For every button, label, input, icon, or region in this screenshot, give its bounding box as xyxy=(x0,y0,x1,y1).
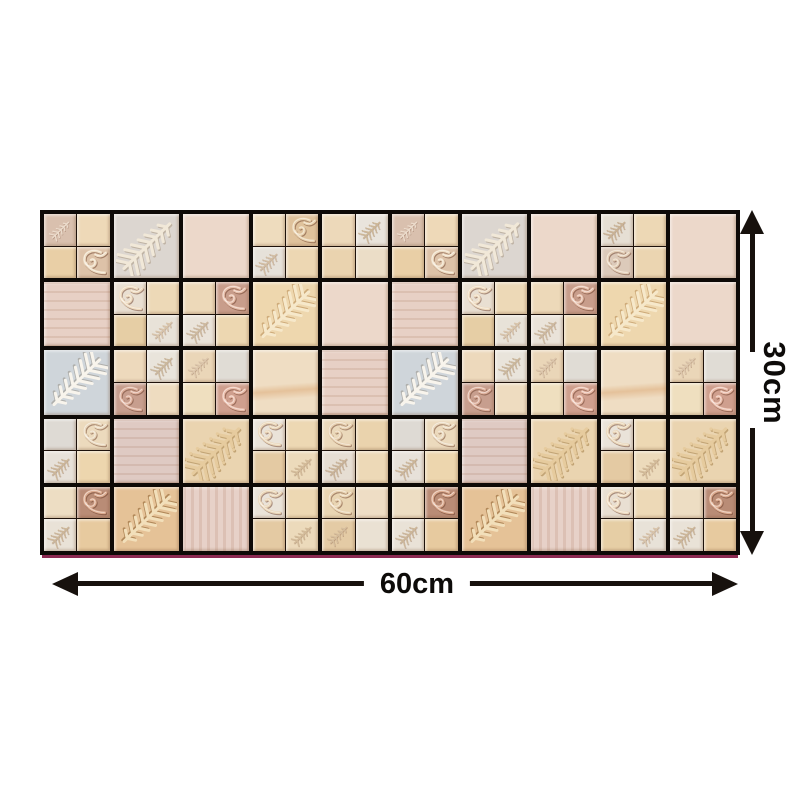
subtile xyxy=(253,451,285,483)
subtile xyxy=(564,315,596,347)
subtile xyxy=(253,419,285,451)
subtile xyxy=(356,487,388,519)
subtile xyxy=(77,214,109,246)
tile-Pp2 xyxy=(392,282,458,346)
curl-scroll-icon xyxy=(601,419,632,449)
height-dimension: 30cm xyxy=(746,210,798,555)
subtile xyxy=(425,451,457,483)
curl-scroll-icon xyxy=(601,487,632,517)
subtile xyxy=(392,419,424,451)
curl-scroll-icon xyxy=(704,384,735,414)
subtile xyxy=(77,247,109,279)
curl-scroll-icon xyxy=(426,419,457,449)
subtile xyxy=(634,487,666,519)
subtile xyxy=(356,419,388,451)
fern-dotted-icon xyxy=(356,215,387,245)
quad-subtiles xyxy=(601,419,667,483)
subtile xyxy=(495,315,527,347)
subtile xyxy=(495,282,527,314)
subtile xyxy=(670,350,702,382)
fern-icon xyxy=(148,315,179,345)
curl-scroll-icon xyxy=(462,283,493,313)
quad-subtiles xyxy=(44,214,110,278)
subtile xyxy=(531,350,563,382)
fern-icon xyxy=(116,489,178,549)
tile-qBL xyxy=(114,350,180,414)
subtile xyxy=(601,214,633,246)
subtile xyxy=(392,451,424,483)
subtile xyxy=(601,451,633,483)
tile-qTRp xyxy=(183,282,249,346)
tile-Pg xyxy=(462,419,528,483)
curl-scroll-icon xyxy=(601,247,632,277)
quad-subtiles xyxy=(322,487,388,551)
curl-scroll-icon xyxy=(114,283,145,313)
subtile xyxy=(462,350,494,382)
subtile xyxy=(77,519,109,551)
subtile xyxy=(564,350,596,382)
subtile xyxy=(495,350,527,382)
tile-qTRc xyxy=(44,419,110,483)
curl-scroll-icon xyxy=(78,247,109,277)
tile-Pp2 xyxy=(44,282,110,346)
arrow-shaft xyxy=(750,232,755,352)
fern-icon xyxy=(323,520,354,550)
subtile xyxy=(634,451,666,483)
subtile xyxy=(704,519,736,551)
subtile xyxy=(44,519,76,551)
quad-subtiles xyxy=(462,282,528,346)
fern-dotted-icon xyxy=(45,452,76,482)
fern-icon xyxy=(464,489,526,549)
curl-scroll-icon xyxy=(217,283,248,313)
subtile xyxy=(462,383,494,415)
subtile xyxy=(77,419,109,451)
fern-dotted-icon xyxy=(672,421,734,481)
tile-qTL xyxy=(601,487,667,551)
subtile xyxy=(564,282,596,314)
quad-subtiles xyxy=(531,282,597,346)
fern-icon xyxy=(255,284,317,344)
quad-subtiles xyxy=(253,419,319,483)
subtile xyxy=(44,487,76,519)
quad-subtiles xyxy=(322,214,388,278)
tile-BFwh xyxy=(44,350,110,414)
tile-Pp xyxy=(322,282,388,346)
curl-scroll-icon xyxy=(78,419,109,449)
tile-qBRp xyxy=(670,350,736,414)
subtile xyxy=(564,383,596,415)
subtile xyxy=(462,282,494,314)
subtile xyxy=(462,315,494,347)
fern-icon xyxy=(635,452,666,482)
subtile xyxy=(495,383,527,415)
subtile xyxy=(147,282,179,314)
subtile xyxy=(44,451,76,483)
fern-icon xyxy=(532,351,563,381)
quad-subtiles xyxy=(392,487,458,551)
arrow-right-icon xyxy=(712,572,738,596)
subtile xyxy=(601,247,633,279)
subtile xyxy=(286,519,318,551)
tile-qBL2 xyxy=(322,419,388,483)
subtile xyxy=(44,214,76,246)
curl-scroll-icon xyxy=(565,384,596,414)
fern-icon xyxy=(496,315,527,345)
tile-BFwh xyxy=(392,350,458,414)
quad-subtiles xyxy=(253,214,319,278)
subtile xyxy=(44,247,76,279)
subtile xyxy=(147,315,179,347)
subtile xyxy=(286,247,318,279)
subtile xyxy=(322,487,354,519)
quad-subtiles xyxy=(462,350,528,414)
quad-subtiles xyxy=(392,419,458,483)
curl-scroll-icon xyxy=(323,487,354,517)
subtile xyxy=(286,419,318,451)
subtile xyxy=(670,519,702,551)
subtile xyxy=(253,247,285,279)
subtile xyxy=(356,519,388,551)
quad-subtiles xyxy=(44,487,110,551)
width-dimension: 60cm xyxy=(52,571,738,597)
quad-subtiles xyxy=(44,419,110,483)
tile-qTL xyxy=(462,282,528,346)
subtile xyxy=(392,214,424,246)
subtile xyxy=(531,315,563,347)
subtile xyxy=(425,419,457,451)
subtile xyxy=(216,383,248,415)
fern-dotted-icon xyxy=(184,315,215,345)
subtile xyxy=(253,519,285,551)
fern-icon xyxy=(671,351,702,381)
subtile xyxy=(322,419,354,451)
tile-panel xyxy=(40,210,740,555)
subtile xyxy=(392,519,424,551)
fern-icon xyxy=(393,215,424,245)
subtile xyxy=(322,451,354,483)
curl-scroll-icon xyxy=(253,487,284,517)
subtile xyxy=(670,487,702,519)
subtile xyxy=(183,315,215,347)
subtile xyxy=(704,383,736,415)
tile-Pp xyxy=(670,282,736,346)
tile-qE xyxy=(322,214,388,278)
subtile xyxy=(634,419,666,451)
subtile xyxy=(634,519,666,551)
width-label: 60cm xyxy=(364,571,470,597)
height-label: 30cm xyxy=(756,341,792,424)
tile-BFw xyxy=(601,282,667,346)
tile-Pp xyxy=(670,214,736,278)
subtile xyxy=(425,247,457,279)
subtile xyxy=(704,487,736,519)
subtile xyxy=(44,419,76,451)
subtile xyxy=(216,350,248,382)
subtile xyxy=(356,247,388,279)
fern-icon xyxy=(464,216,526,276)
tile-Pp2 xyxy=(322,350,388,414)
fern-icon xyxy=(45,215,76,245)
tile-BFd xyxy=(531,419,597,483)
subtile xyxy=(114,315,146,347)
quad-subtiles xyxy=(322,419,388,483)
tile-qE2 xyxy=(601,214,667,278)
subtile xyxy=(114,282,146,314)
tile-qTRm xyxy=(392,487,458,551)
curl-scroll-icon xyxy=(426,247,457,277)
tile-qTL2 xyxy=(253,419,319,483)
curl-scroll-icon xyxy=(78,487,109,517)
subtile xyxy=(601,419,633,451)
subtile xyxy=(114,383,146,415)
tile-Pg xyxy=(114,419,180,483)
tile-qBRp xyxy=(531,350,597,414)
tile-Pb xyxy=(253,350,319,414)
subtile xyxy=(183,350,215,382)
subtile xyxy=(147,350,179,382)
subtile xyxy=(392,247,424,279)
fern-icon xyxy=(116,216,178,276)
quad-subtiles xyxy=(114,282,180,346)
fern-icon xyxy=(184,351,215,381)
subtile xyxy=(114,350,146,382)
product-dimension-image: 30cm 60cm xyxy=(0,0,800,800)
subtile xyxy=(601,519,633,551)
arrow-shaft xyxy=(750,428,755,533)
subtile xyxy=(322,247,354,279)
curl-scroll-icon xyxy=(323,419,354,449)
tile-BFd xyxy=(183,419,249,483)
fern-icon xyxy=(394,352,456,412)
fern-dotted-icon xyxy=(671,520,702,550)
subtile xyxy=(183,282,215,314)
subtile xyxy=(601,487,633,519)
fern-dotted-icon xyxy=(253,247,284,277)
fern-dotted-icon xyxy=(496,351,527,381)
subtile xyxy=(531,383,563,415)
subtile xyxy=(425,519,457,551)
fern-icon xyxy=(287,520,318,550)
subtile xyxy=(670,383,702,415)
tile-qD xyxy=(253,214,319,278)
subtile xyxy=(704,350,736,382)
quad-subtiles xyxy=(253,487,319,551)
subtile xyxy=(147,383,179,415)
tile-BFg xyxy=(462,214,528,278)
tile-BFt xyxy=(114,487,180,551)
subtile xyxy=(392,487,424,519)
tile-qTRp xyxy=(531,282,597,346)
quad-subtiles xyxy=(183,282,249,346)
tile-qTRc xyxy=(392,419,458,483)
fern-icon xyxy=(46,352,108,412)
tile-Ps xyxy=(183,487,249,551)
tile-qTL2 xyxy=(253,487,319,551)
subtile xyxy=(356,214,388,246)
fern-dotted-icon xyxy=(185,421,247,481)
curl-scroll-icon xyxy=(565,283,596,313)
tile-BFd xyxy=(670,419,736,483)
quad-subtiles xyxy=(601,487,667,551)
subtile xyxy=(531,282,563,314)
quad-subtiles xyxy=(531,350,597,414)
quad-subtiles xyxy=(392,214,458,278)
subtile xyxy=(286,451,318,483)
tile-Ps xyxy=(531,487,597,551)
quad-subtiles xyxy=(601,214,667,278)
tile-BFg xyxy=(114,214,180,278)
quad-subtiles xyxy=(183,350,249,414)
curl-scroll-icon xyxy=(287,215,318,245)
subtile xyxy=(183,383,215,415)
arrow-down-icon xyxy=(740,531,764,555)
tile-BFt xyxy=(462,487,528,551)
curl-scroll-icon xyxy=(114,384,145,414)
subtile xyxy=(634,247,666,279)
fern-dotted-icon xyxy=(148,351,179,381)
fern-icon xyxy=(287,452,318,482)
tile-Pp xyxy=(531,214,597,278)
quad-subtiles xyxy=(670,487,736,551)
tile-qA xyxy=(392,214,458,278)
fern-dotted-icon xyxy=(323,452,354,482)
tile-Pb xyxy=(601,350,667,414)
subtile xyxy=(425,214,457,246)
subtile xyxy=(216,282,248,314)
tile-qA xyxy=(44,214,110,278)
curl-scroll-icon xyxy=(426,487,457,517)
subtile xyxy=(356,451,388,483)
subtile xyxy=(322,519,354,551)
fern-dotted-icon xyxy=(393,452,424,482)
tile-Pp xyxy=(183,214,249,278)
arrow-up-icon xyxy=(740,210,764,234)
subtile xyxy=(77,451,109,483)
tile-qTL xyxy=(114,282,180,346)
curl-scroll-icon xyxy=(462,384,493,414)
subtile xyxy=(322,214,354,246)
tile-qBL xyxy=(462,350,528,414)
subtile xyxy=(77,487,109,519)
quad-subtiles xyxy=(114,350,180,414)
curl-scroll-icon xyxy=(253,419,284,449)
fern-icon xyxy=(603,284,665,344)
subtile xyxy=(634,214,666,246)
tile-qBRp xyxy=(183,350,249,414)
subtile xyxy=(253,487,285,519)
tile-qTRm xyxy=(670,487,736,551)
tile-qBL3 xyxy=(322,487,388,551)
subtile xyxy=(253,214,285,246)
quad-subtiles xyxy=(670,350,736,414)
subtile xyxy=(216,315,248,347)
fern-dotted-icon xyxy=(393,520,424,550)
fern-icon xyxy=(635,520,666,550)
curl-scroll-icon xyxy=(217,384,248,414)
tile-qTL2 xyxy=(601,419,667,483)
fern-dotted-icon xyxy=(601,215,632,245)
fern-dotted-icon xyxy=(533,421,595,481)
subtile xyxy=(286,214,318,246)
curl-scroll-icon xyxy=(704,487,735,517)
subtile xyxy=(286,487,318,519)
fern-dotted-icon xyxy=(45,520,76,550)
fern-dotted-icon xyxy=(532,315,563,345)
subtile xyxy=(425,487,457,519)
tile-qTRm xyxy=(44,487,110,551)
tile-BFw xyxy=(253,282,319,346)
